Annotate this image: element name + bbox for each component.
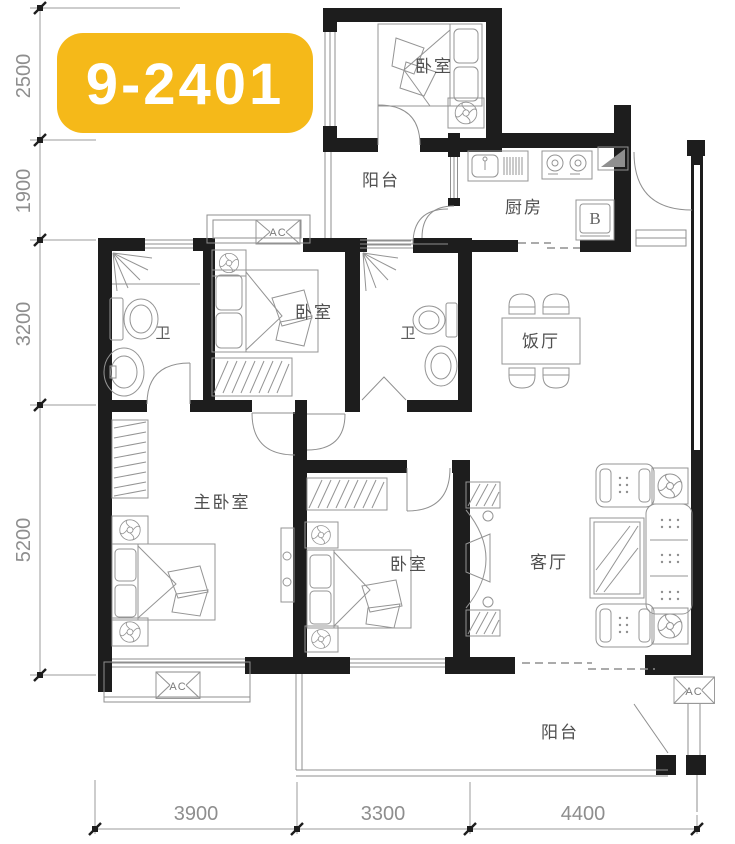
label-kitchen: 厨房 bbox=[505, 198, 543, 217]
label-living: 客厅 bbox=[530, 553, 568, 572]
label-bath-mid: 卫 bbox=[400, 325, 415, 342]
fridge-label: B bbox=[589, 209, 600, 228]
label-bath-left: 卫 bbox=[155, 325, 170, 342]
right-wall-glazing bbox=[694, 165, 700, 450]
dim-4400: 4400 bbox=[561, 803, 606, 825]
dim-3900: 3900 bbox=[174, 803, 219, 825]
ac-label: AC bbox=[169, 681, 186, 693]
badge-unit-number: 9-2401 bbox=[86, 52, 285, 117]
ac-label: AC bbox=[685, 686, 702, 698]
ac-label: AC bbox=[269, 227, 286, 239]
dim-5200: 5200 bbox=[13, 518, 35, 563]
label-balcony-bottom: 阳台 bbox=[541, 723, 579, 742]
dim-2500: 2500 bbox=[13, 54, 35, 99]
label-bedroom-middle: 卧室 bbox=[295, 303, 333, 322]
label-balcony-top: 阳台 bbox=[362, 171, 400, 190]
dim-1900: 1900 bbox=[13, 169, 35, 214]
floor-plan: B bbox=[0, 0, 735, 844]
dim-3300: 3300 bbox=[361, 803, 406, 825]
label-bedroom-bottom: 卧室 bbox=[390, 555, 428, 574]
label-bedroom-top: 卧室 bbox=[415, 57, 453, 76]
label-master-bedroom: 主卧室 bbox=[194, 493, 251, 512]
unit-badge: 9-2401 bbox=[57, 33, 313, 133]
dim-3200: 3200 bbox=[13, 302, 35, 347]
label-dining: 饭厅 bbox=[522, 332, 560, 351]
